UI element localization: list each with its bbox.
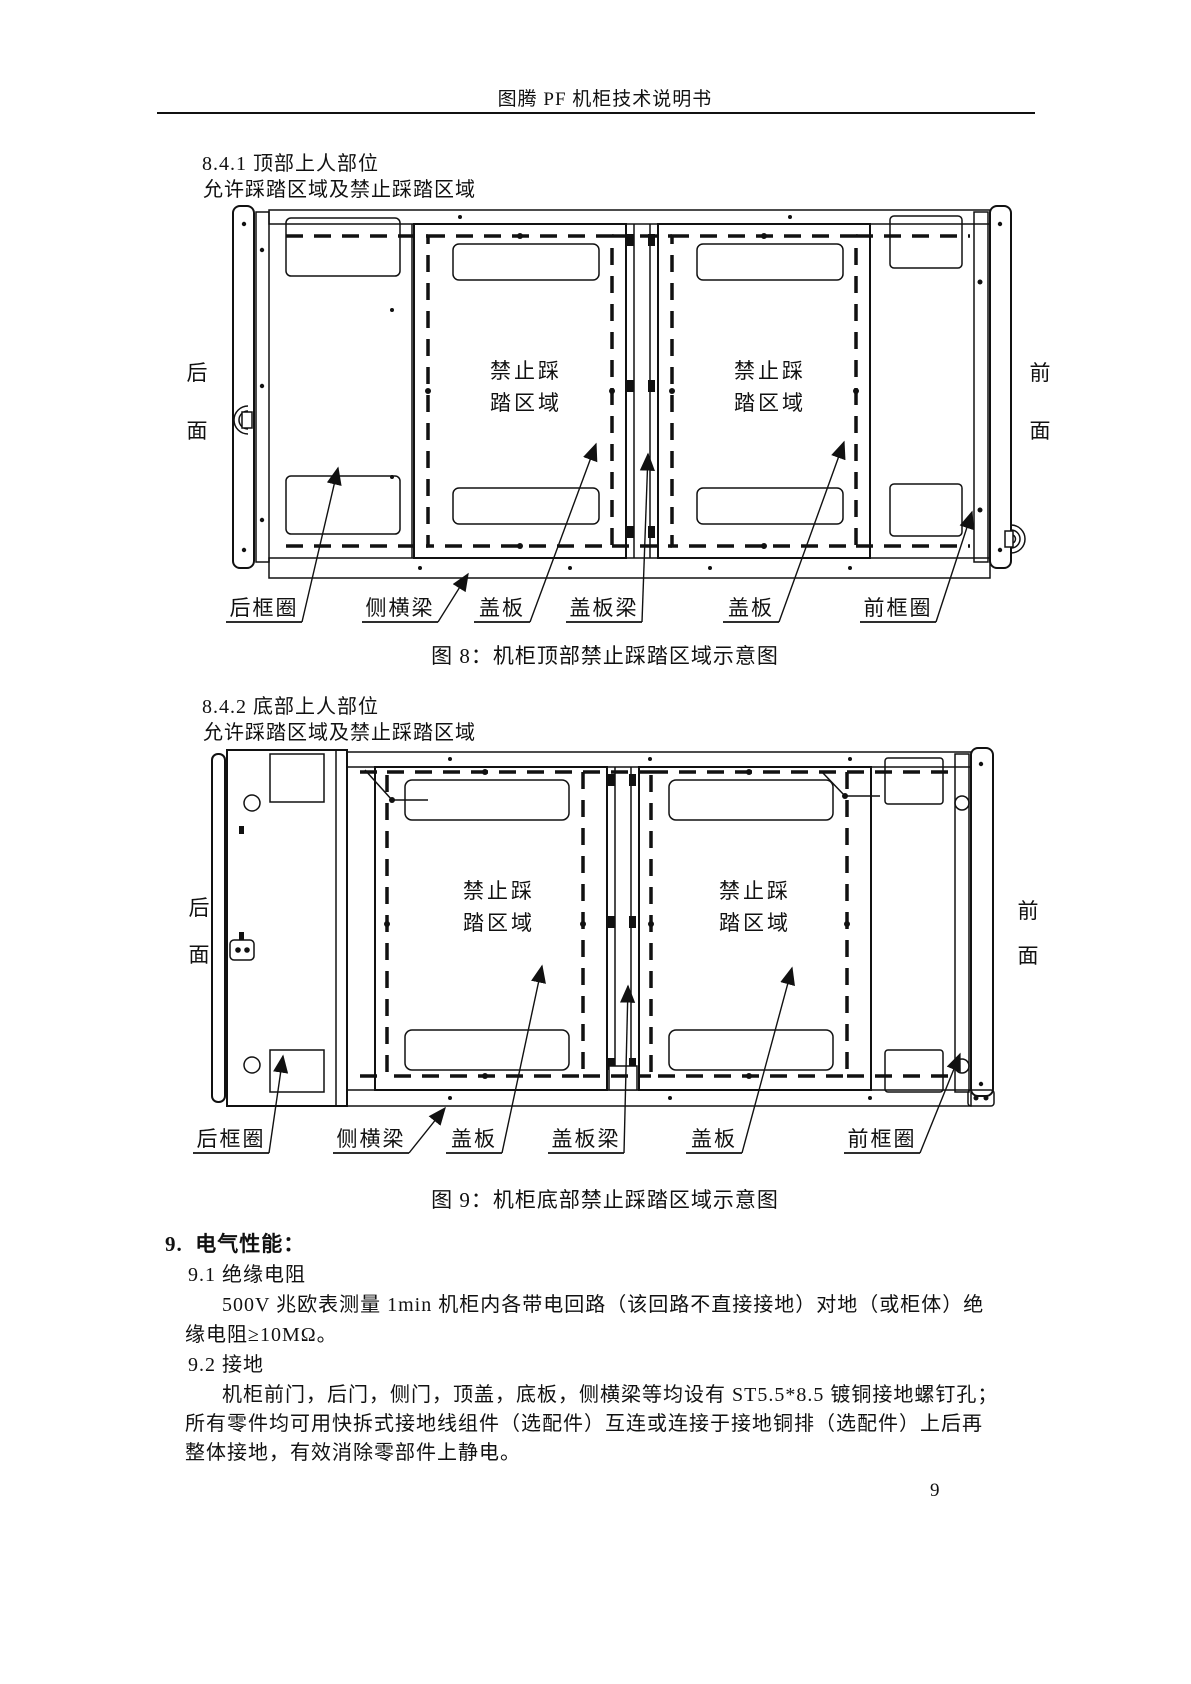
paragraph-91-line2: 缘电阻≥10MΩ。 [185,1318,338,1347]
forbidden-zone-text-right-line2: 踏区域 [734,391,806,415]
section-841-heading: 8.4.1 顶部上人部位 [202,147,379,176]
section-9-heading: 9. 电气性能： [165,1228,305,1258]
side-beam-top [269,210,990,224]
front-side-label-bottom: 面 [1018,944,1039,968]
front-side-label-bottom: 面 [1030,419,1051,443]
figure9-caption: 图 9：机柜底部禁止踩踏区域示意图 [150,1184,1060,1214]
forbidden-zone-text-right-line1: 禁止踩 [734,359,806,383]
paragraph-92-line3: 整体接地，有效消除零部件上静电。 [185,1436,521,1465]
right-filler-panel [890,216,962,536]
part-label-cover-beam: 盖板梁 [552,1127,621,1151]
left-filler-panel [286,218,412,558]
figure8-diagram: 禁止踩 踏区域 禁止踩 踏区域 [150,190,1100,632]
rear-frame-ring [233,206,269,568]
section-91-heading: 9.1 绝缘电阻 [188,1258,306,1287]
rear-door-panel [212,750,347,1106]
rear-hinge-icon [230,940,254,960]
paragraph-92-line1: 机柜前门，后门，侧门，顶盖，底板，侧横梁等均设有 ST5.5*8.5 镀铜接地螺… [222,1378,998,1407]
part-label-front-frame: 前框圈 [848,1127,917,1151]
part-label-side-beam: 侧横梁 [337,1127,406,1151]
part-label-cover-beam: 盖板梁 [570,596,639,620]
part-label-cover-right: 盖板 [691,1127,737,1151]
part-label-front-frame: 前框圈 [864,596,933,620]
part-label-cover-left: 盖板 [479,596,525,620]
forbidden-zone-text-left-line1: 禁止踩 [463,879,535,903]
part-label-rear-frame: 后框圈 [230,596,299,620]
forbidden-zone-text-right-line1: 禁止踩 [719,879,791,903]
figure9-diagram: 禁止踩 踏区域 禁止踩 踏区域 [150,736,1100,1166]
forbidden-zone-text-left-line1: 禁止踩 [490,359,562,383]
header-title: 图腾 PF 机柜技术说明书 [150,84,1060,111]
part-label-cover-right: 盖板 [728,596,774,620]
paragraph-91-line1: 500V 兆欧表测量 1min 机柜内各带电回路（该回路不直接接地）对地（或柜体… [222,1288,984,1317]
section-842-heading: 8.4.2 底部上人部位 [202,690,379,719]
page-number: 9 [930,1480,940,1502]
part-labels: 后框圈 侧横梁 盖板 盖板梁 盖板 前框圈 [193,966,960,1153]
side-beam-top [347,752,971,767]
header-rule [157,112,1035,114]
section-92-heading: 9.2 接地 [188,1348,264,1377]
part-label-side-beam: 侧横梁 [366,596,435,620]
document-page: 图腾 PF 机柜技术说明书 8.4.1 顶部上人部位 允许踩踏区域及禁止踩踏区域 [0,0,1191,1684]
front-frame-ring [974,206,1011,568]
forbidden-zone-text-left-line2: 踏区域 [490,391,562,415]
rear-side-label-bottom: 面 [187,419,208,443]
forbidden-zone-text-right-line2: 踏区域 [719,911,791,935]
figure8-caption: 图 8：机柜顶部禁止踩踏区域示意图 [150,640,1060,670]
part-label-rear-frame: 后框圈 [197,1127,266,1151]
rear-side-label-top: 后 [189,896,210,920]
side-beam-bottom [269,558,990,578]
part-label-cover-left: 盖板 [451,1127,497,1151]
part-labels: 后框圈 侧横梁 盖板 盖板梁 盖板 前框圈 [226,442,972,622]
rear-side-label-top: 后 [187,361,208,385]
side-beam-bottom [347,1090,971,1106]
paragraph-92-line2: 所有零件均可用快拆式接地线组件（选配件）互连或连接于接地铜排（选配件）上后再 [185,1407,983,1436]
right-filler-panel [885,758,943,1092]
cover-plate-beam [608,767,637,1090]
front-handle-icon [1005,525,1025,553]
front-side-label-top: 前 [1018,899,1039,923]
top-hook-details [365,770,880,803]
front-frame-ring [955,748,993,1096]
front-side-label-top: 前 [1030,361,1051,385]
rear-side-label-bottom: 面 [189,943,210,967]
rear-handle-icon [234,406,252,434]
forbidden-zone-text-left-line2: 踏区域 [463,911,535,935]
cover-plate-beam [627,224,655,558]
